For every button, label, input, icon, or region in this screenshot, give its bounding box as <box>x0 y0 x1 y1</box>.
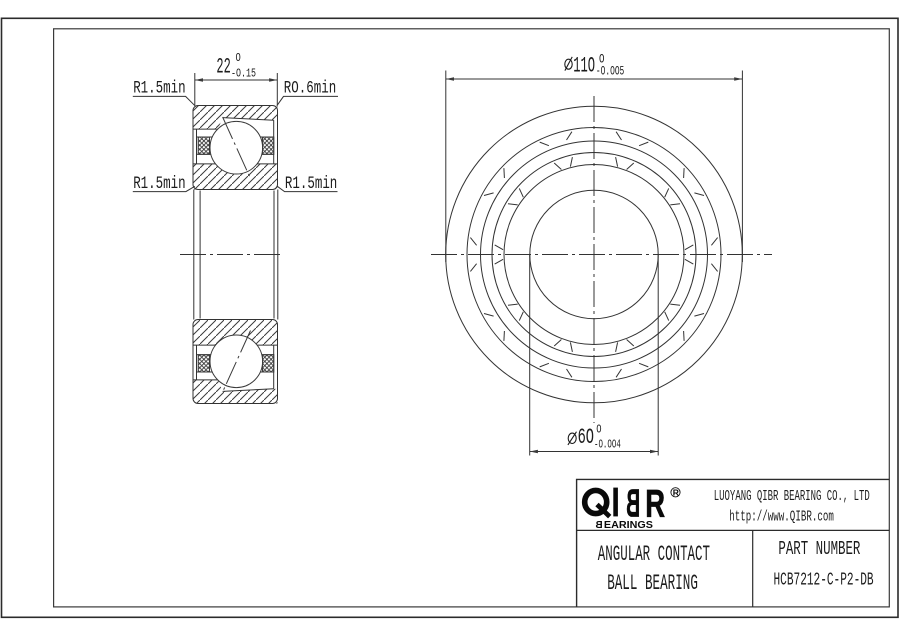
svg-text:22: 22 <box>216 54 230 79</box>
svg-text:LUOYANG QIBR BEARING CO., LTD: LUOYANG QIBR BEARING CO., LTD <box>714 489 870 505</box>
svg-text:R: R <box>673 487 679 497</box>
svg-text:-O.15: -O.15 <box>231 67 256 81</box>
svg-text:EARINGS: EARINGS <box>604 519 653 531</box>
svg-text:6O: 6O <box>578 425 594 450</box>
svg-text:http://www.QIBR.com: http://www.QIBR.com <box>729 510 834 526</box>
svg-text:11O: 11O <box>573 54 595 79</box>
svg-text:R1.5min: R1.5min <box>133 80 185 99</box>
svg-text:HCB7212-C-P2-DB: HCB7212-C-P2-DB <box>774 571 874 591</box>
svg-text:O: O <box>236 51 241 65</box>
svg-text:O: O <box>596 422 601 436</box>
svg-text:-O.OO5: -O.OO5 <box>596 64 624 78</box>
svg-text:-O.OO4: -O.OO4 <box>594 437 621 451</box>
svg-text:PART NUMBER: PART NUMBER <box>778 538 860 560</box>
svg-text:BALL BEARING: BALL BEARING <box>607 570 698 596</box>
svg-text:ANGULAR CONTACT: ANGULAR CONTACT <box>598 541 710 567</box>
svg-text:RO.6min: RO.6min <box>284 80 336 99</box>
svg-text:B: B <box>595 519 603 531</box>
